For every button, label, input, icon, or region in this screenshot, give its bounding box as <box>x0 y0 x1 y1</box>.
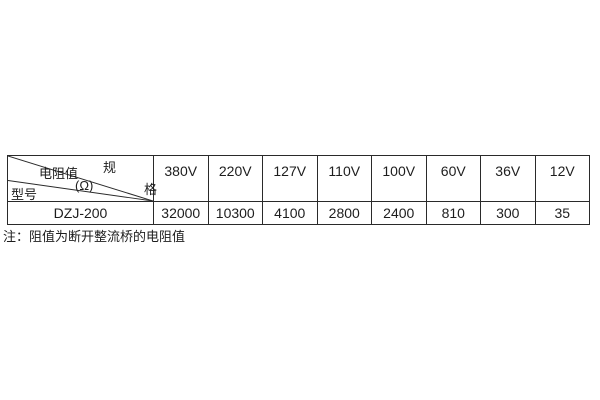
model-cell: DZJ-200 <box>8 202 154 225</box>
resistance-unit-label: (Ω) <box>75 179 93 192</box>
model-label: 型号 <box>11 188 37 201</box>
voltage-header-110v: 110V <box>317 156 372 202</box>
value-cell-127v: 4100 <box>263 202 318 225</box>
voltage-header-36v: 36V <box>481 156 536 202</box>
voltage-header-220v: 220V <box>208 156 263 202</box>
resistance-label: 电阻值 <box>39 167 78 180</box>
value-cell-110v: 2800 <box>317 202 372 225</box>
footnote: 注：阻值为断开整流桥的电阻值 <box>3 229 185 245</box>
value-cell-380v: 32000 <box>154 202 209 225</box>
value-cell-36v: 300 <box>481 202 536 225</box>
header-row: 规 格 电阻值 (Ω) 型号 380V 220V 127V 110V 100V … <box>8 156 590 202</box>
value-cell-220v: 10300 <box>208 202 263 225</box>
resistance-spec-table: 规 格 电阻值 (Ω) 型号 380V 220V 127V 110V 100V … <box>7 155 590 225</box>
spec-label-char-top: 规 <box>103 161 116 174</box>
spec-label-char-bottom: 格 <box>144 183 157 196</box>
voltage-header-12v: 12V <box>535 156 590 202</box>
voltage-header-60v: 60V <box>426 156 481 202</box>
voltage-header-380v: 380V <box>154 156 209 202</box>
voltage-header-127v: 127V <box>263 156 318 202</box>
value-cell-60v: 810 <box>426 202 481 225</box>
diagonal-header-cell: 规 格 电阻值 (Ω) 型号 <box>8 156 154 202</box>
value-cell-12v: 35 <box>535 202 590 225</box>
value-cell-100v: 2400 <box>372 202 427 225</box>
table-row: DZJ-200 32000 10300 4100 2800 2400 810 3… <box>8 202 590 225</box>
voltage-header-100v: 100V <box>372 156 427 202</box>
